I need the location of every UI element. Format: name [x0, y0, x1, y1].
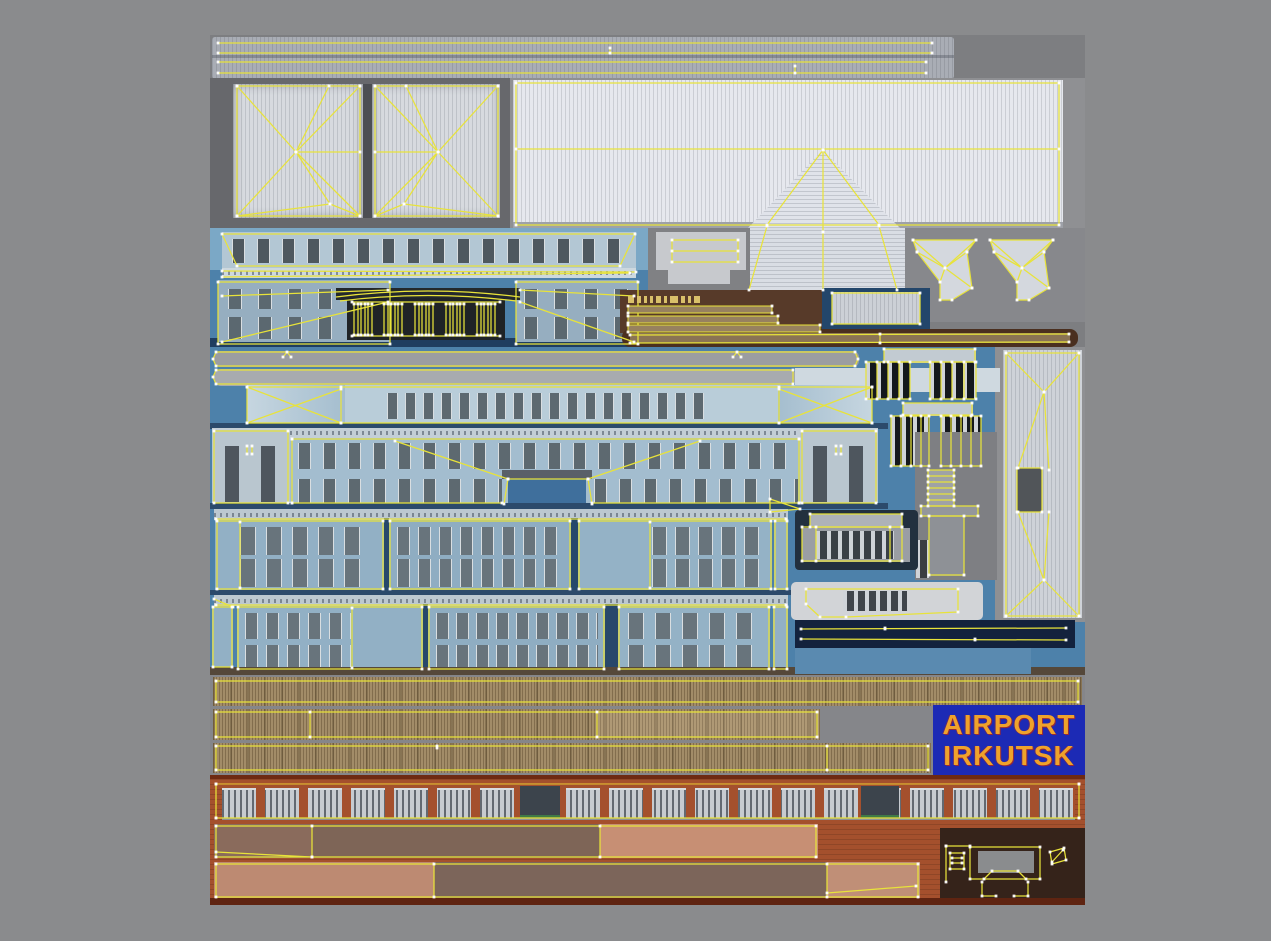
wood-strip-3: [213, 743, 931, 773]
facade1-windows-r1: [524, 289, 630, 309]
light-blue-filler: [795, 648, 1031, 674]
small-piece-body: [656, 232, 746, 270]
facade2-windows-lower-right: [594, 479, 798, 503]
attic-strip-windows: [387, 393, 711, 419]
balustrade1-rail: [884, 349, 976, 363]
attic-strip-end-right: [778, 385, 872, 425]
roof-corner-panel: [905, 228, 1085, 322]
canopy-top: [810, 514, 902, 528]
brick-top-line: [210, 775, 1085, 779]
facade1-balustrade-backing: [347, 298, 505, 340]
brick-door-2: [861, 786, 899, 816]
door-right-1: [813, 446, 827, 502]
tower-ladder: [928, 470, 954, 506]
facade1-windows-r2: [524, 317, 630, 339]
facade2-door-section-left: [212, 430, 290, 505]
facade1-cornice: [222, 268, 636, 278]
facade3-s3-w1: [652, 527, 766, 555]
door-left-2: [261, 446, 275, 502]
gable-face-texture: [737, 228, 908, 291]
facade2-cornice: [212, 428, 878, 438]
tower-shaft: [929, 516, 964, 576]
plaster-strip-1: [214, 824, 818, 858]
facade3-s3-w2: [652, 559, 766, 587]
facade3-div1: [384, 518, 389, 592]
eave-strip-divider: [212, 55, 954, 58]
facade3-s1-w2: [240, 559, 370, 587]
brick-door-1: [520, 786, 560, 816]
facade3-s1-w1: [240, 527, 370, 555]
furniture-table-top: [978, 851, 1034, 873]
tall-roof-texture: [1003, 350, 1082, 618]
facade4-s2-w1: [436, 613, 598, 639]
airport-sign-line2: IRKUTSK: [943, 740, 1074, 771]
balustrade2-rail: [903, 403, 973, 416]
facade3-narrow: [774, 520, 788, 590]
hip-roof-gap-shadow: [363, 84, 372, 218]
facade2-door-section-right: [800, 430, 878, 505]
facade2-notch: [508, 479, 586, 506]
door-right-2: [849, 446, 863, 502]
facade4-narrow-left: [212, 606, 233, 668]
attic-strip-end-left: [247, 385, 345, 425]
brown-panel: [620, 290, 822, 333]
hip-roof-texture-left: [233, 84, 363, 218]
canopy-window-band: [816, 531, 894, 559]
wood-strip-1: [213, 677, 1082, 706]
facade3-div2: [571, 518, 578, 592]
facade4-cornice: [214, 595, 788, 606]
brick-door-2-sill: [861, 815, 899, 818]
facade4-narrow-right: [773, 606, 788, 668]
facade2-windows-upper: [298, 443, 798, 469]
hip-roof-texture-right: [372, 84, 500, 218]
small-piece-step: [668, 268, 730, 284]
facade4-s3-w1: [628, 613, 762, 639]
facade1-upper-windows: [232, 239, 624, 263]
facade4-div2: [605, 604, 618, 670]
facade4-s1-w1: [245, 613, 351, 639]
airport-sign: AIRPORT IRKUTSK: [933, 705, 1085, 775]
balustrade1-right: [930, 362, 976, 399]
facade3-s2-w1: [397, 527, 563, 555]
plaster-strip-2: [214, 862, 920, 898]
brick-window-piers: [222, 786, 1075, 818]
facade3-cornice: [214, 509, 788, 520]
door-left-1: [225, 446, 239, 502]
ridge-strip-light: [214, 369, 796, 386]
balustrade1-left: [866, 362, 910, 399]
long-brown-strip-band: [630, 333, 1070, 343]
texture-atlas-canvas: AIRPORT IRKUTSK: [0, 0, 1271, 941]
eave-strips-backing: [212, 37, 954, 79]
ridge-strip-dark: [214, 351, 859, 367]
brick-bottom-line: [210, 898, 1085, 905]
wood-strip-2-light: [597, 711, 819, 738]
facade4-div1: [423, 604, 428, 670]
tall-roof-chimney: [1017, 468, 1042, 512]
facade3-s2-w2: [397, 559, 563, 587]
light-canopy-windows: [843, 591, 907, 611]
tower-step: [921, 506, 978, 516]
brick-door-1-sill: [520, 815, 560, 818]
ribbed-rect-texture: [832, 292, 920, 324]
navy-trim-strip: [795, 620, 1075, 648]
facade2-windows-lower-left: [298, 479, 502, 503]
airport-sign-line1: AIRPORT: [943, 709, 1076, 740]
facade2-lintel: [502, 470, 592, 479]
